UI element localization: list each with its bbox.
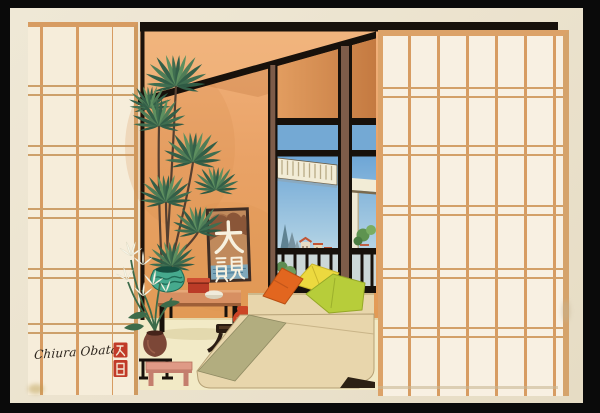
shoji-crossbar [383,145,563,156]
shoji-crossbar [28,208,134,219]
paper-stain [28,384,44,394]
ceiling-beam [378,22,558,30]
wall-panel-text: 大観 [10,8,11,9]
shoji-crossbar [28,85,134,96]
postcard: 大観 Chiura Obata [10,8,583,403]
shoji-crossbar [383,268,563,279]
interior-scene [136,22,378,390]
white-bowl [205,291,223,300]
photo-background: 大観 Chiura Obata [0,0,600,413]
shoji-screen-right [378,30,569,396]
paper-stain [562,300,570,322]
brown-jar [143,330,167,357]
shoji-crossbar [383,205,563,216]
shoji-crossbar [28,145,134,156]
artist-seal-icon [113,342,128,380]
shoji-crossbar [383,87,563,98]
red-box [187,278,210,293]
shoji-crossbar [383,327,563,338]
shoji-crossbar [28,323,134,334]
shoji-crossbar [28,268,134,279]
shoji-screen-left [28,22,138,395]
